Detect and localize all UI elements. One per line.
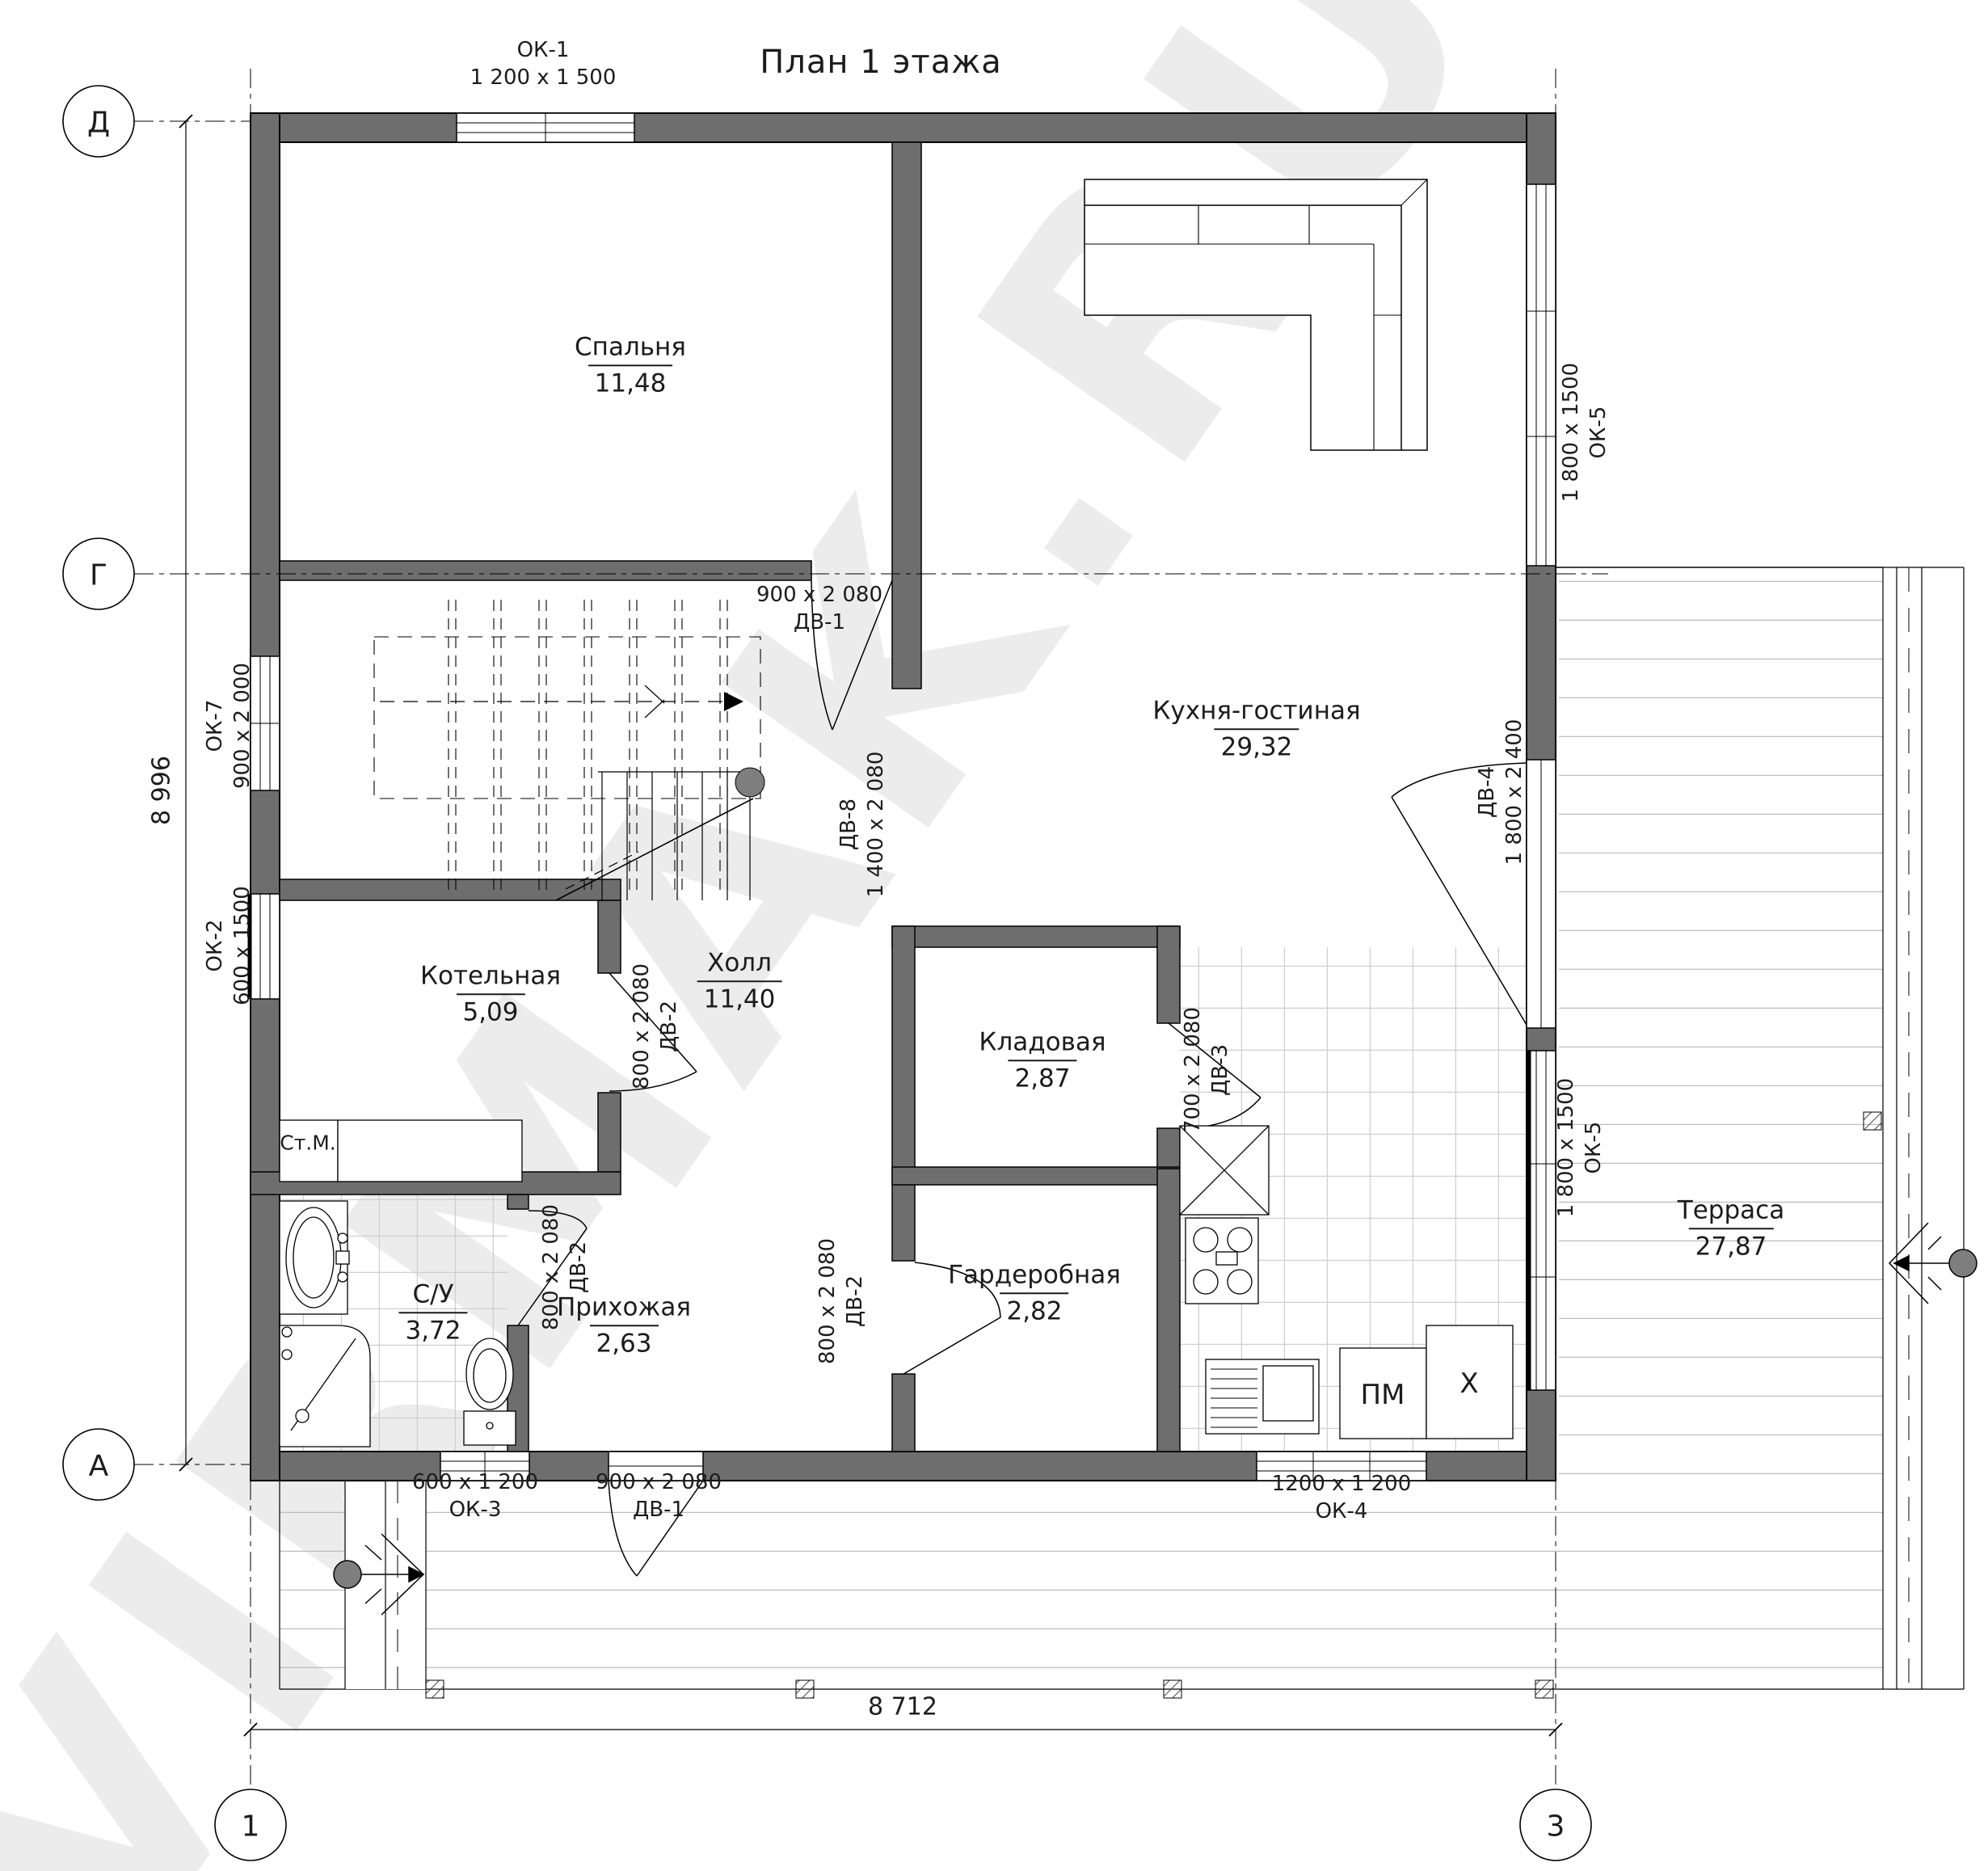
window-ok5-lower [1527,1051,1556,1390]
label-dv3: 700 x 2 080ДВ-3 [1180,1007,1235,1133]
room-label-bathroom: С/У3,72 [398,1279,467,1346]
sofa [1085,179,1427,450]
shower-icon [280,1325,370,1447]
window-ok5-upper [1527,184,1556,566]
label-ok3: 600 x 1 200ОК-3 [412,1469,538,1524]
label-ok2: ОК-2600 x 1500 [202,886,257,1005]
label-ok4: 1200 x 1 200ОК-4 [1272,1471,1412,1526]
fridge-label: Х [1459,1367,1478,1401]
label-dv4: ДВ-41 800 x 2 400 [1474,719,1529,866]
stair-post-icon [735,768,764,797]
label-dv1-entrance: 900 x 2 080ДВ-1 [596,1469,722,1524]
room-label-bedroom: Спальня11,48 [575,331,686,399]
dim-bottom: 8 712 [868,1692,937,1722]
axis-label-d: Д [87,105,110,141]
axis-label-1: 1 [242,1809,260,1845]
room-label-boiler: Котельная5,09 [420,960,561,1028]
room-label-terrace: Терраса27,87 [1678,1195,1784,1262]
kitchen-sink-icon [1263,1366,1313,1421]
label-dv8: ДВ-81 400 x 2 080 [836,752,891,898]
room-label-pantry: Кладовая2,87 [979,1026,1106,1094]
room-label-kitchen: Кухня-гостиная29,32 [1152,695,1360,763]
label-ok7: ОК-7900 x 2 000 [202,663,257,789]
floor-plan-sheet: VIRMAK.RU [0,0,1988,1871]
room-label-wardrobe: Гардеробная2,82 [948,1259,1121,1327]
page-title: План 1 этажа [760,42,1002,82]
label-ok1: ОК-11 200 x 1 500 [470,37,617,92]
dishwasher-label: ПМ [1361,1378,1405,1413]
terrace-step-strip [1883,567,1964,1689]
window-ok1 [457,113,634,142]
label-ok5-upper: 1 800 x 1500ОК-5 [1558,363,1613,503]
label-dv2-wardrobe: 800 x 2 080ДВ-2 [815,1238,870,1364]
room-label-hall: Холл11,40 [697,947,782,1015]
axis-label-a: А [89,1448,109,1485]
staircase [374,600,764,900]
axis-label-3: 3 [1547,1809,1565,1845]
washing-machine-label: Ст.М. [280,1130,335,1155]
axis-label-g: Г [90,558,107,594]
label-dv2-bathroom: 800 x 2 080ДВ-2 [538,1204,593,1330]
floor-plan-drawing [0,0,1988,1871]
label-ok5-lower: 1 800 x 1500ОК-5 [1553,1078,1608,1218]
label-dv2-boiler: 800 x 2 080ДВ-2 [629,963,684,1089]
label-dv1-bedroom: 900 x 2 080ДВ-1 [756,582,882,637]
dim-left: 8 996 [146,756,177,825]
